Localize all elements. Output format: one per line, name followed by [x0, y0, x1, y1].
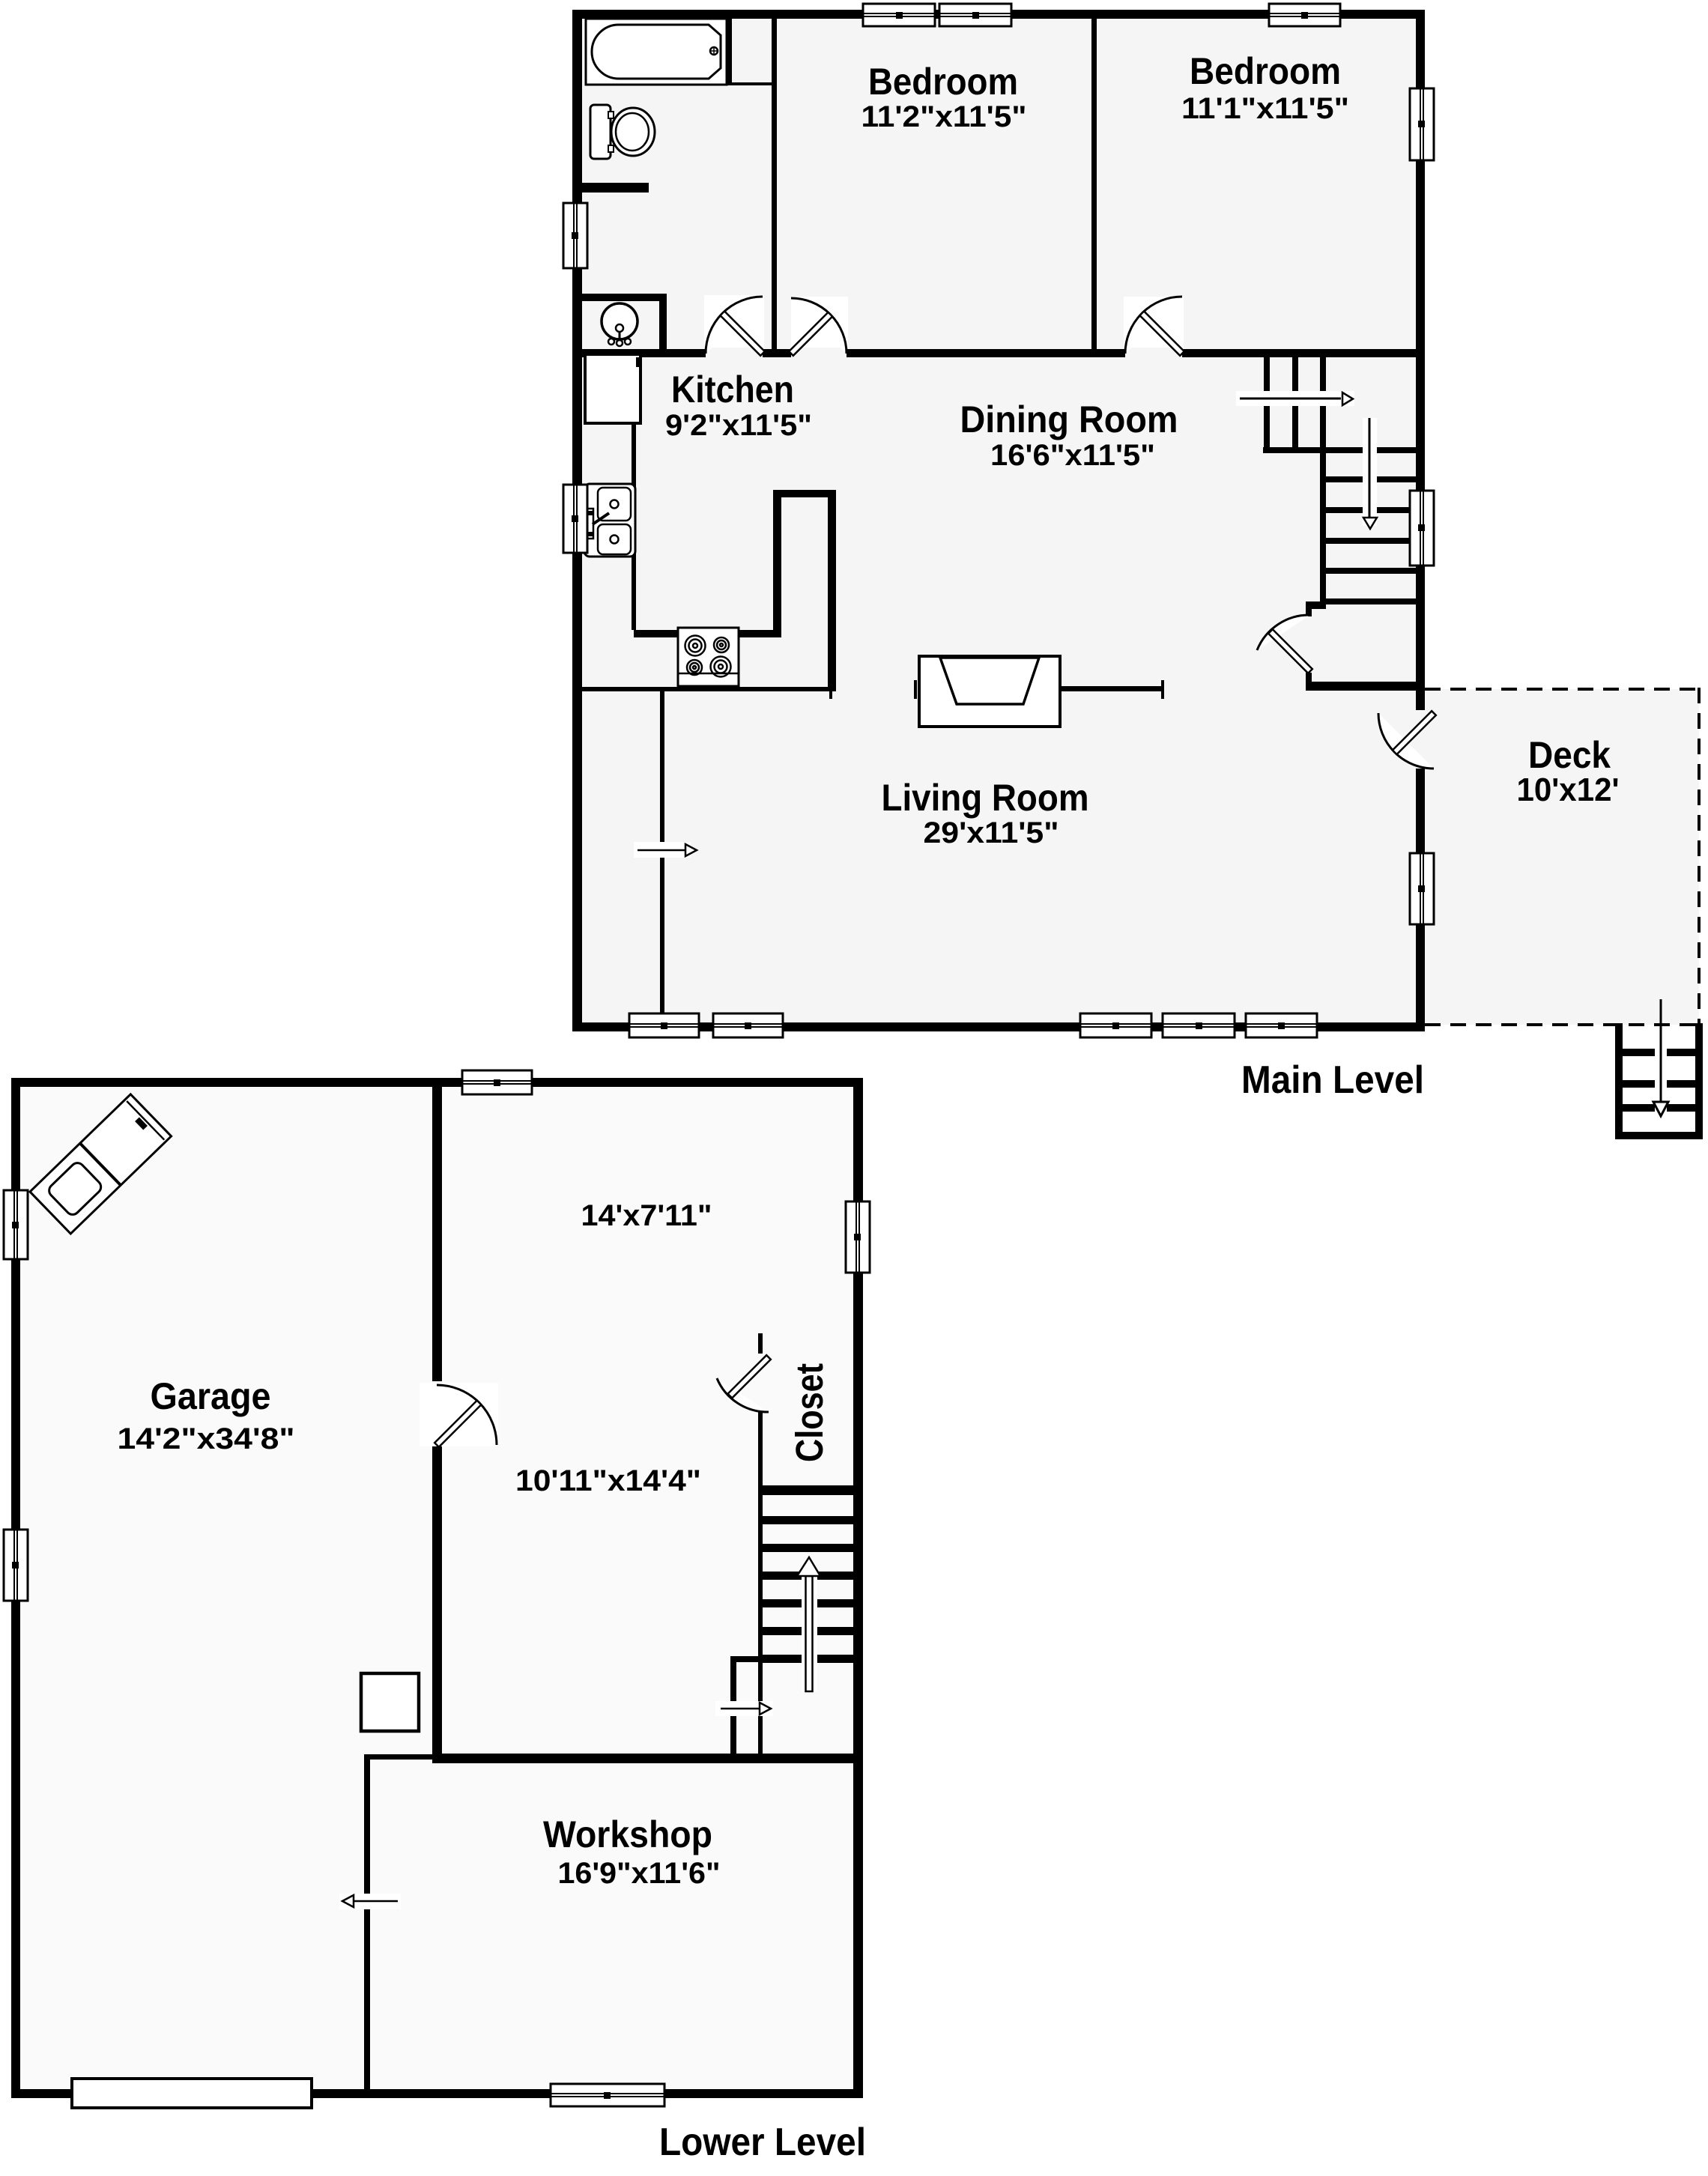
svg-text:16'9"x11'6": 16'9"x11'6" — [558, 1857, 721, 1890]
svg-text:Kitchen: Kitchen — [671, 369, 794, 410]
svg-text:Living Room: Living Room — [882, 777, 1089, 819]
svg-text:10'11"x14'4": 10'11"x14'4" — [515, 1464, 701, 1497]
svg-text:Bedroom: Bedroom — [1190, 50, 1341, 92]
svg-text:Deck: Deck — [1528, 734, 1611, 776]
svg-text:29'x11'5": 29'x11'5" — [924, 816, 1059, 849]
svg-text:11'1"x11'5": 11'1"x11'5" — [1181, 92, 1349, 125]
svg-text:16'6"x11'5": 16'6"x11'5" — [990, 439, 1155, 472]
svg-text:Lower Level: Lower Level — [659, 2121, 866, 2164]
svg-text:Garage: Garage — [151, 1375, 271, 1417]
svg-text:Workshop: Workshop — [543, 1813, 712, 1855]
svg-text:Main Level: Main Level — [1241, 1058, 1424, 1102]
svg-text:14'x7'11": 14'x7'11" — [581, 1199, 712, 1232]
svg-text:Bedroom: Bedroom — [868, 61, 1018, 103]
svg-text:10'x12': 10'x12' — [1517, 772, 1620, 808]
svg-text:Dining Room: Dining Room — [960, 398, 1178, 440]
svg-text:Closet: Closet — [788, 1363, 831, 1462]
svg-text:11'2"x11'5": 11'2"x11'5" — [861, 100, 1027, 133]
svg-text:9'2"x11'5": 9'2"x11'5" — [665, 409, 812, 442]
svg-text:14'2"x34'8": 14'2"x34'8" — [118, 1422, 295, 1455]
